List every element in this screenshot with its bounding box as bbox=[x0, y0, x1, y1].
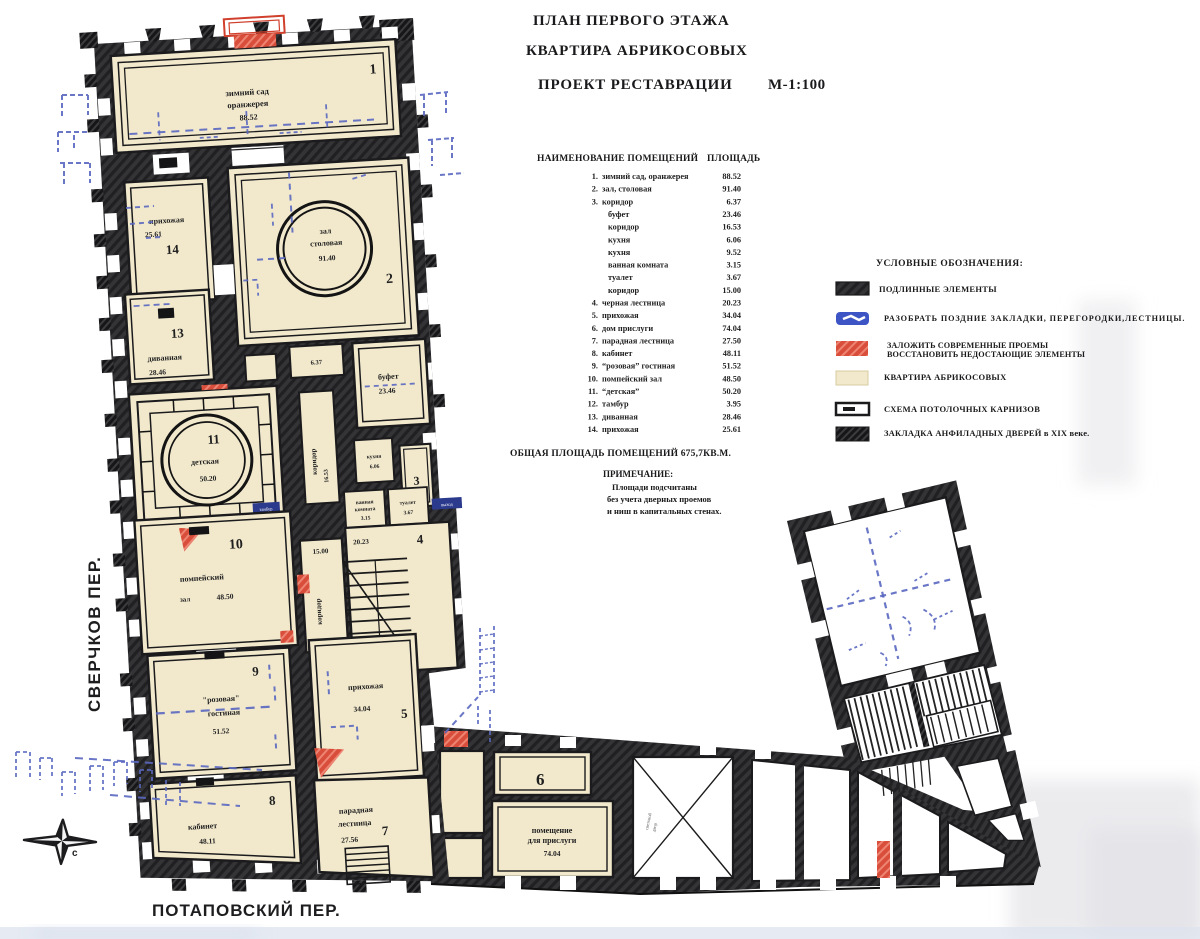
svg-text:для прислуги: для прислуги bbox=[528, 836, 577, 845]
svg-text:74.04: 74.04 bbox=[544, 849, 561, 858]
svg-text:1: 1 bbox=[369, 62, 377, 77]
svg-text:28.46: 28.46 bbox=[149, 367, 167, 377]
svg-text:с: с bbox=[72, 848, 78, 859]
svg-text:помещение: помещение bbox=[532, 826, 573, 835]
svg-text:48.50: 48.50 bbox=[722, 374, 741, 383]
svg-text:УСЛОВНЫЕ ОБОЗНАЧЕНИЯ:: УСЛОВНЫЕ ОБОЗНАЧЕНИЯ: bbox=[876, 259, 1023, 269]
svg-text:“розовая” гостиная: “розовая” гостиная bbox=[602, 362, 676, 371]
svg-text:48.11: 48.11 bbox=[199, 836, 216, 846]
svg-text:50.20: 50.20 bbox=[722, 387, 741, 396]
svg-text:48.11: 48.11 bbox=[723, 349, 741, 358]
svg-text:ВОССТАНОВИТЬ НЕДОСТАЮЩИЕ ЭЛЕМЕ: ВОССТАНОВИТЬ НЕДОСТАЮЩИЕ ЭЛЕМЕНТЫ bbox=[887, 350, 1085, 359]
svg-text:3.67: 3.67 bbox=[726, 273, 741, 282]
svg-text:туалет: туалет bbox=[608, 273, 633, 282]
svg-text:коридор: коридор bbox=[314, 598, 324, 625]
svg-text:15.00: 15.00 bbox=[722, 286, 741, 295]
svg-text:“детская”: “детская” bbox=[602, 387, 639, 396]
svg-text:10: 10 bbox=[229, 537, 244, 553]
svg-text:ЗАЛОЖИТЬ СОВРЕМЕННЫЕ ПРОЕМЫ: ЗАЛОЖИТЬ СОВРЕМЕННЫЕ ПРОЕМЫ bbox=[887, 341, 1048, 350]
svg-text:6.37: 6.37 bbox=[310, 359, 323, 367]
svg-text:91.40: 91.40 bbox=[318, 253, 336, 263]
svg-text:2.: 2. bbox=[592, 185, 598, 194]
svg-text:16.53: 16.53 bbox=[324, 469, 331, 483]
svg-text:коридор: коридор bbox=[602, 197, 634, 206]
svg-text:91.40: 91.40 bbox=[722, 185, 741, 194]
svg-text:кабинет: кабинет bbox=[188, 821, 218, 832]
svg-text:1.: 1. bbox=[592, 172, 598, 181]
svg-text:6.: 6. bbox=[592, 324, 598, 333]
svg-text:25.61: 25.61 bbox=[722, 425, 741, 434]
svg-text:ПЛОЩАДЬ: ПЛОЩАДЬ bbox=[707, 154, 760, 164]
svg-text:диванная: диванная bbox=[602, 412, 638, 421]
svg-text:50.20: 50.20 bbox=[199, 473, 217, 483]
svg-text:без учета дверных проемов: без учета дверных проемов bbox=[607, 494, 712, 504]
svg-text:10.: 10. bbox=[588, 374, 598, 383]
svg-text:ПРОЕКТ РЕСТАВРАЦИИ: ПРОЕКТ РЕСТАВРАЦИИ bbox=[538, 77, 733, 93]
svg-text:коридор: коридор bbox=[309, 448, 319, 475]
svg-text:дом прислуги: дом прислуги bbox=[602, 324, 653, 333]
svg-text:34.04: 34.04 bbox=[722, 311, 741, 320]
svg-text:9.: 9. bbox=[592, 362, 598, 371]
svg-text:коридор: коридор bbox=[608, 286, 640, 295]
svg-text:НАИМЕНОВАНИЕ ПОМЕЩЕНИЙ: НАИМЕНОВАНИЕ ПОМЕЩЕНИЙ bbox=[537, 152, 699, 164]
svg-text:13.: 13. bbox=[588, 412, 598, 421]
svg-text:20.23: 20.23 bbox=[722, 299, 741, 308]
svg-text:51.52: 51.52 bbox=[722, 362, 741, 371]
svg-text:ПОДЛИННЫЕ ЭЛЕМЕНТЫ: ПОДЛИННЫЕ ЭЛЕМЕНТЫ bbox=[879, 284, 997, 294]
svg-text:туалет: туалет bbox=[399, 500, 416, 507]
svg-text:прихожая: прихожая bbox=[602, 425, 639, 434]
svg-text:74.04: 74.04 bbox=[722, 324, 741, 333]
svg-text:кухня: кухня bbox=[608, 235, 631, 244]
svg-text:и ниш в капитальных стенах.: и ниш в капитальных стенах. bbox=[607, 506, 722, 516]
svg-text:тамбур: тамбур bbox=[602, 400, 629, 409]
svg-text:12.: 12. bbox=[588, 400, 598, 409]
svg-text:34.04: 34.04 bbox=[353, 704, 371, 714]
svg-text:ПРИМЕЧАНИЕ:: ПРИМЕЧАНИЕ: bbox=[603, 469, 673, 479]
svg-text:М-1:100: М-1:100 bbox=[768, 77, 826, 93]
svg-text:зал: зал bbox=[319, 226, 332, 236]
svg-text:6: 6 bbox=[536, 770, 545, 789]
svg-text:буфет: буфет bbox=[378, 372, 399, 382]
svg-text:ПЛАН ПЕРВОГО ЭТАЖА: ПЛАН ПЕРВОГО ЭТАЖА bbox=[533, 13, 730, 29]
svg-text:6.37: 6.37 bbox=[726, 197, 741, 206]
svg-text:27.50: 27.50 bbox=[722, 336, 741, 345]
svg-text:РАЗОБРАТЬ ПОЗДНИЕ ЗАКЛАДКИ, ПЕ: РАЗОБРАТЬ ПОЗДНИЕ ЗАКЛАДКИ, ПЕРЕГОРОДКИ,… bbox=[884, 314, 1185, 323]
svg-text:28.46: 28.46 bbox=[722, 412, 741, 421]
svg-text:4.: 4. bbox=[592, 299, 598, 308]
svg-text:3.67: 3.67 bbox=[403, 510, 413, 517]
svg-text:зимний сад, оранжерея: зимний сад, оранжерея bbox=[602, 172, 689, 181]
svg-text:51.52: 51.52 bbox=[212, 726, 230, 736]
svg-text:коридор: коридор bbox=[608, 223, 640, 232]
svg-text:КВАРТИРА АБРИКОСОВЫХ: КВАРТИРА АБРИКОСОВЫХ bbox=[526, 43, 748, 59]
svg-text:6.06: 6.06 bbox=[370, 464, 380, 471]
svg-text:48.50: 48.50 bbox=[216, 592, 234, 602]
svg-text:ванная: ванная bbox=[356, 499, 374, 506]
svg-text:кухня: кухня bbox=[608, 248, 631, 257]
svg-text:11.: 11. bbox=[588, 387, 598, 396]
svg-text:3.15: 3.15 bbox=[726, 261, 741, 270]
svg-text:комната: комната bbox=[355, 506, 376, 513]
svg-text:14.: 14. bbox=[588, 425, 598, 434]
svg-text:детская: детская bbox=[191, 456, 220, 467]
svg-text:14: 14 bbox=[165, 241, 179, 257]
svg-text:3.: 3. bbox=[592, 197, 598, 206]
svg-text:парадная лестница: парадная лестница bbox=[602, 336, 675, 345]
svg-text:КВАРТИРА АБРИКОСОВЫХ: КВАРТИРА АБРИКОСОВЫХ bbox=[884, 372, 1007, 382]
svg-text:черная лестница: черная лестница bbox=[602, 299, 666, 308]
svg-text:11: 11 bbox=[207, 431, 220, 447]
svg-text:СВЕРЧКОВ ПЕР.: СВЕРЧКОВ ПЕР. bbox=[85, 556, 104, 712]
svg-text:5.: 5. bbox=[592, 311, 598, 320]
svg-text:16.53: 16.53 bbox=[722, 223, 741, 232]
svg-text:зал: зал bbox=[180, 595, 191, 604]
svg-text:88.52: 88.52 bbox=[722, 172, 741, 181]
svg-text:15.00: 15.00 bbox=[312, 547, 329, 556]
svg-text:27.56: 27.56 bbox=[341, 835, 359, 845]
svg-text:прихожая: прихожая bbox=[602, 311, 639, 320]
svg-text:3.15: 3.15 bbox=[361, 515, 371, 522]
svg-text:7.: 7. bbox=[592, 336, 598, 345]
svg-text:Площади подсчитаны: Площади подсчитаны bbox=[612, 482, 697, 492]
svg-text:ванная комната: ванная комната bbox=[608, 261, 669, 270]
svg-text:кухня: кухня bbox=[366, 454, 381, 461]
svg-text:3.95: 3.95 bbox=[726, 400, 741, 409]
svg-text:ЗАКЛАДКА АНФИЛАДНЫХ ДВЕРЕЙ в X: ЗАКЛАДКА АНФИЛАДНЫХ ДВЕРЕЙ в XIX веке. bbox=[884, 428, 1090, 438]
svg-text:буфет: буфет bbox=[608, 210, 629, 219]
svg-text:20.23: 20.23 bbox=[353, 538, 370, 547]
svg-text:зал, столовая: зал, столовая bbox=[602, 185, 652, 194]
svg-text:88.52: 88.52 bbox=[239, 112, 258, 122]
svg-text:8.: 8. bbox=[592, 349, 598, 358]
svg-text:23.46: 23.46 bbox=[378, 386, 396, 396]
svg-text:13: 13 bbox=[170, 325, 184, 341]
svg-text:9.52: 9.52 bbox=[726, 248, 741, 257]
svg-text:ОБЩАЯ ПЛОЩАДЬ ПОМЕЩЕНИЙ 675,7К: ОБЩАЯ ПЛОЩАДЬ ПОМЕЩЕНИЙ 675,7КВ.М. bbox=[510, 447, 731, 459]
svg-text:ПОТАПОВСКИЙ ПЕР.: ПОТАПОВСКИЙ ПЕР. bbox=[152, 901, 341, 920]
svg-text:3: 3 bbox=[413, 473, 420, 487]
svg-text:СХЕМА ПОТОЛОЧНЫХ КАРНИЗОВ: СХЕМА ПОТОЛОЧНЫХ КАРНИЗОВ bbox=[884, 404, 1040, 414]
svg-text:2: 2 bbox=[386, 272, 394, 287]
svg-text:помпейский зал: помпейский зал bbox=[602, 374, 662, 383]
svg-text:выход: выход bbox=[441, 501, 454, 507]
svg-text:кабинет: кабинет bbox=[602, 349, 632, 358]
svg-text:6.06: 6.06 bbox=[726, 235, 741, 244]
svg-text:23.46: 23.46 bbox=[722, 210, 741, 219]
